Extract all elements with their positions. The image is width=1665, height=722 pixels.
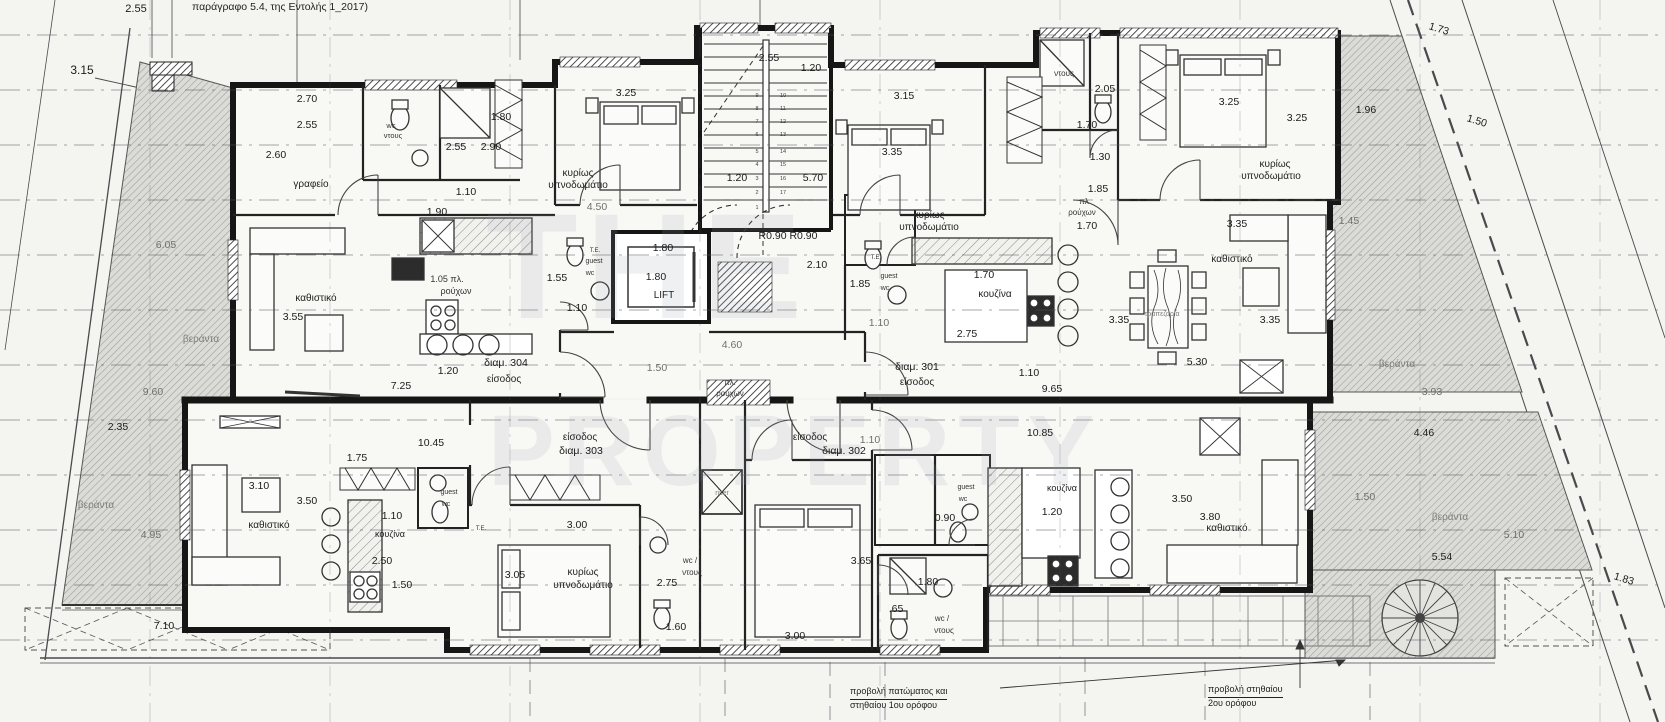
plan-label: wc /	[934, 614, 950, 623]
plan-label: 1.50	[1355, 491, 1376, 503]
veranda-northeast	[1325, 36, 1522, 392]
plan-label: βεράντα	[183, 333, 219, 345]
plan-label: 3.55	[283, 311, 304, 323]
plan-label: 2	[755, 190, 758, 196]
plan-label: κυρίως	[1259, 158, 1290, 170]
plan-label: 1.80	[491, 111, 512, 123]
bed	[836, 120, 943, 210]
plan-label: ντους	[1054, 69, 1074, 78]
plan-label: 1.10	[382, 510, 403, 522]
plan-label: 5	[755, 149, 758, 155]
plan-label: 3.00	[785, 630, 806, 642]
plan-label: 1.85	[1088, 183, 1109, 195]
plan-label: 4.46	[1414, 427, 1435, 439]
plan-label: wc	[441, 501, 451, 508]
plan-label: R0.90 R0.90	[759, 230, 818, 242]
plan-label: 1.70	[1077, 119, 1098, 131]
plan-label: wc	[880, 285, 890, 292]
note-line: προβολή στηθαίου	[1208, 684, 1283, 698]
plan-label: κουζίνα	[375, 529, 405, 539]
plan-label: 1.20	[801, 62, 822, 74]
plan-label: 1.80	[918, 576, 939, 588]
plan-label: 2.75	[957, 328, 978, 340]
plan-label: 1.10	[869, 317, 890, 329]
plan-label: γραφείο	[293, 178, 329, 190]
note-line: στηθαίου 1ου ορόφου	[850, 700, 937, 710]
plan-label: 3.25	[616, 87, 637, 99]
plan-label: υπνοδωμάτιο	[899, 221, 959, 233]
plan-label: 3.93	[1422, 386, 1443, 398]
bed	[586, 98, 694, 190]
plan-label: 3.65	[851, 555, 872, 567]
plan-label: .65	[889, 603, 904, 615]
plan-label: ντους	[934, 626, 954, 635]
plan-label: καθιστικό	[295, 292, 337, 304]
plan-label: κουζίνα	[978, 288, 1012, 300]
plan-label: είσοδος	[900, 376, 935, 388]
plan-label: 9.60	[143, 386, 164, 398]
note-projection-2: προβολή στηθαίου 2ου ορόφου	[1208, 684, 1338, 709]
plan-label: 1.55	[547, 272, 568, 284]
plan-label: 5.10	[1504, 529, 1525, 541]
plan-label: 3.25	[1219, 96, 1240, 108]
plan-label: 16	[780, 176, 786, 182]
note-arrows	[1000, 640, 1345, 688]
plan-label: 15	[780, 162, 786, 168]
plan-label: 7	[755, 119, 758, 125]
plan-label: 1.83	[1612, 570, 1635, 587]
plan-label: ρούχων	[716, 389, 744, 398]
plan-label: βεράντα	[78, 499, 114, 511]
plan-label: THE	[486, 182, 810, 350]
bed	[498, 545, 610, 637]
plan-label: υπνοδωμάτιο	[548, 179, 608, 191]
plan-label: 2.90	[481, 141, 502, 153]
plan-label: 1.50	[392, 579, 413, 591]
plan-label: wc	[958, 496, 968, 503]
plan-label: 1.70	[1077, 220, 1098, 232]
plan-label: 10.85	[1027, 427, 1053, 439]
plan-label: 1.50	[1465, 112, 1488, 129]
plan-label: 1.73	[1427, 20, 1450, 37]
plan-label: καθιστικό	[1211, 253, 1253, 265]
note-line: προβολή πατώματος και	[850, 686, 947, 700]
plan-label: 1.50	[647, 362, 668, 374]
plan-label: guest	[585, 258, 602, 265]
plan-label: 17	[780, 190, 786, 196]
plan-label: 3.05	[505, 569, 526, 581]
note-projection-1: προβολή πατώματος και στηθαίου 1ου ορόφο…	[850, 686, 1025, 711]
plan-label: 1.10	[1019, 367, 1040, 379]
plan-label: ρούχων	[440, 286, 472, 296]
plan-label: 3.35	[882, 146, 903, 158]
plan-label: 7.10	[154, 620, 175, 632]
plan-label: 1.80	[653, 242, 674, 254]
plan-label: 3.50	[1172, 493, 1193, 505]
plan-label: 1.90	[427, 206, 448, 218]
plan-label: ντους	[682, 568, 702, 577]
sink-icon	[412, 150, 428, 166]
note-line: 2ου ορόφου	[1208, 698, 1256, 708]
plan-label: ρούχων	[1068, 208, 1096, 217]
plan-label: wc	[585, 270, 595, 277]
plan-label: κουζίνα	[1047, 483, 1077, 493]
plan-label: 1.30	[1090, 151, 1111, 163]
plan-label: 2.55	[446, 141, 467, 153]
plan-label: 2.60	[266, 149, 287, 161]
plan-label: 2.55	[297, 119, 318, 131]
plan-label: 5.54	[1432, 551, 1453, 563]
plan-label: Τ.Ε.	[871, 255, 882, 261]
plan-label: 1.05 πλ.	[430, 274, 463, 284]
plan-label: τραπεζαρία	[1145, 310, 1180, 318]
plan-label: 1.80	[646, 271, 667, 283]
plan-label: 1.10	[456, 186, 477, 198]
plan-label: 4.60	[722, 339, 743, 351]
plan-label: 1.20	[727, 172, 748, 184]
plan-label: 2.55	[759, 52, 780, 64]
plan-label: βεράντα	[1379, 358, 1415, 370]
plan-label: 3.00	[567, 519, 588, 531]
plan-label: 5.70	[803, 172, 824, 184]
plan-label: 4.95	[141, 529, 162, 541]
plan-label: 1.20	[1042, 506, 1063, 518]
plan-label: διαμ. 303	[559, 445, 603, 457]
plan-label: 1.20	[438, 365, 459, 377]
plan-label: 9	[755, 93, 758, 99]
plan-label: guest	[440, 489, 457, 496]
plan-label: 1.85	[850, 278, 871, 290]
plan-label: κυρίως	[913, 209, 944, 221]
plan-label: 0.90	[935, 512, 956, 524]
plan-label: διαμ. 302	[822, 445, 866, 457]
plan-label: 1.70	[974, 269, 995, 281]
plan-label: 3	[755, 176, 758, 182]
plan-label: πλ.	[724, 378, 736, 387]
plan-label: 2.10	[807, 259, 828, 271]
plan-label: 4.50	[587, 201, 608, 213]
plan-label: 2.75	[657, 577, 678, 589]
plan-label: βεράντα	[1432, 511, 1468, 523]
plan-label: wc	[385, 121, 395, 130]
plan-label: υπνοδωμάτιο	[553, 579, 613, 591]
plan-label: 3.35	[1260, 314, 1281, 326]
plan-label: 13	[780, 132, 786, 138]
plan-label: 8	[755, 106, 758, 112]
plan-label: διαμ. 304	[484, 357, 528, 369]
plan-label: riser	[715, 490, 729, 497]
plan-label: 2.50	[372, 555, 393, 567]
plan-label: 14	[780, 149, 786, 155]
plan-label: διαμ. 301	[895, 361, 939, 373]
plan-label: 1.45	[1339, 215, 1360, 227]
plan-label: καθιστικό	[1206, 522, 1248, 534]
plan-label: 6	[755, 132, 758, 138]
plan-label: 12	[780, 119, 786, 125]
plan-label: 1	[755, 205, 758, 211]
plan-label: LIFT	[654, 290, 675, 301]
plan-label: 1.96	[1356, 104, 1377, 116]
plan-label: είσοδος	[487, 373, 522, 385]
floor-plan-drawing: THEPROPERTY2.553.152.702.552.60wcντους2.…	[0, 0, 1665, 722]
plan-label: 9.65	[1042, 383, 1063, 395]
plan-label: 3.35	[1227, 218, 1248, 230]
plan-label: Τ.Ε.	[590, 248, 601, 254]
plan-label: 1.60	[666, 621, 687, 633]
plan-label: καθιστικό	[248, 519, 290, 531]
bed	[755, 505, 860, 637]
plan-label: 2.55	[125, 3, 146, 15]
plan-label: πλ	[1079, 197, 1089, 206]
plan-label: 1.75	[347, 452, 368, 464]
plan-label: 2.70	[297, 93, 318, 105]
plan-label: υπνοδωμάτιο	[1241, 170, 1301, 182]
plan-label: 7.25	[391, 380, 412, 392]
plan-label: είσοδος	[563, 431, 598, 443]
plan-label: 3.80	[1200, 511, 1221, 523]
plan-label: είσοδος	[793, 431, 828, 443]
plan-label: 2.35	[108, 421, 129, 433]
floor-plan-sheet: THEPROPERTY2.553.152.702.552.60wcντους2.…	[0, 0, 1665, 722]
plan-label: 4	[755, 162, 758, 168]
plan-label: 3.50	[297, 495, 318, 507]
plan-label: 10.45	[418, 437, 444, 449]
plan-label: 5.30	[1187, 356, 1208, 368]
plan-label: 3.25	[1287, 112, 1308, 124]
plan-label: 3.15	[894, 90, 915, 102]
plan-label: κυρίως	[567, 566, 598, 578]
plan-label: ντους	[384, 131, 403, 140]
plan-label: 11	[780, 106, 786, 112]
plan-label: wc /	[682, 556, 698, 565]
plan-label: κυρίως	[562, 167, 593, 179]
plan-label: guest	[957, 484, 974, 491]
plan-label: Τ.Ε.	[476, 526, 487, 532]
sheet-header-note: παράγραφο 5.4, της Εντολής 1_2017)	[192, 1, 368, 13]
plan-label: 3.15	[70, 63, 94, 77]
plan-label: guest	[880, 273, 897, 280]
plan-label: 3.10	[249, 480, 270, 492]
plan-label: 2.05	[1095, 83, 1116, 95]
plan-label: 10	[780, 93, 786, 99]
plan-label: 6.05	[156, 239, 177, 251]
plan-label: 1.10	[567, 302, 588, 314]
plan-label: 3.35	[1109, 314, 1130, 326]
